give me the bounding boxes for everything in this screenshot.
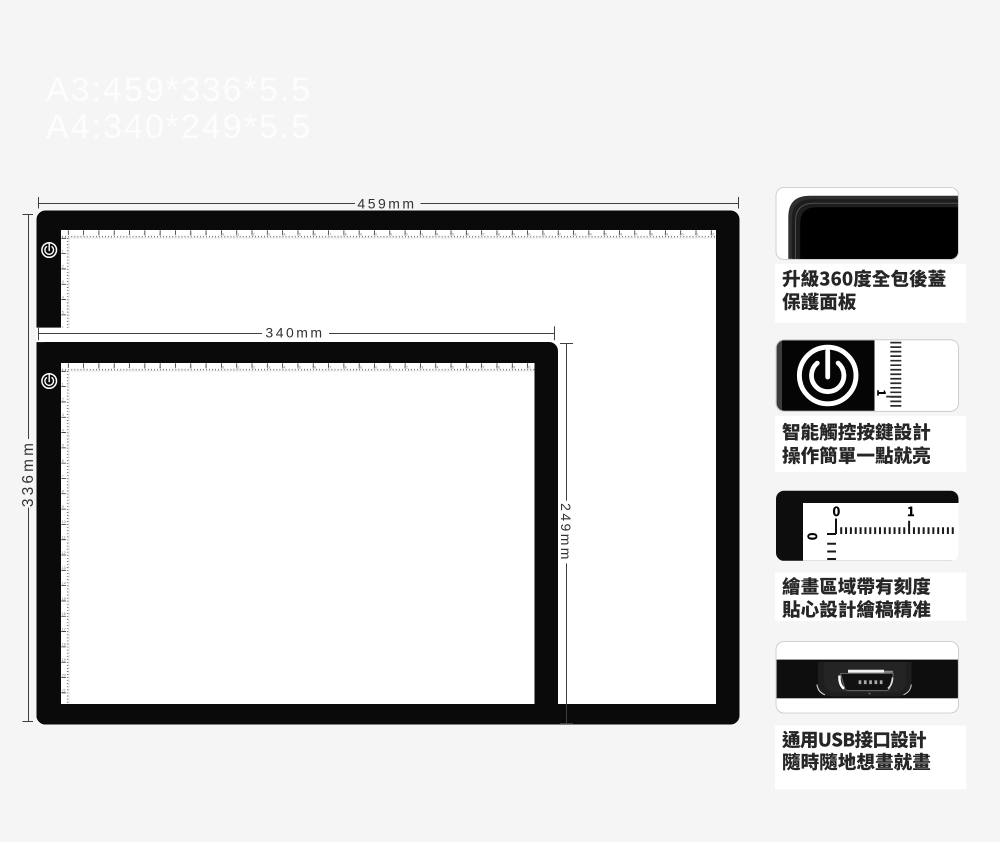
svg-text:2: 2 <box>62 398 64 402</box>
svg-text:3: 3 <box>62 280 64 284</box>
svg-text:10: 10 <box>62 520 66 524</box>
svg-text:37: 37 <box>634 233 638 237</box>
svg-text:459mm: 459mm <box>357 196 416 212</box>
svg-text:13: 13 <box>62 566 66 570</box>
svg-text:17: 17 <box>62 627 66 631</box>
svg-text:16: 16 <box>312 233 316 237</box>
svg-text:30: 30 <box>526 233 530 237</box>
svg-text:27: 27 <box>480 366 484 370</box>
svg-text:12: 12 <box>251 366 255 370</box>
svg-text:15: 15 <box>297 366 301 370</box>
svg-text:6: 6 <box>62 459 64 463</box>
svg-text:20: 20 <box>373 366 377 370</box>
svg-text:17: 17 <box>327 233 331 237</box>
svg-text:38: 38 <box>649 233 653 237</box>
svg-text:35: 35 <box>603 233 607 237</box>
svg-text:13: 13 <box>266 233 270 237</box>
svg-text:21: 21 <box>389 233 393 237</box>
svg-text:27: 27 <box>480 233 484 237</box>
svg-text:18: 18 <box>62 643 66 647</box>
svg-text:17: 17 <box>327 366 331 370</box>
svg-text:5: 5 <box>62 444 64 448</box>
svg-text:30: 30 <box>526 366 530 370</box>
svg-text:19: 19 <box>62 658 66 662</box>
svg-text:14: 14 <box>281 233 285 237</box>
svg-text:28: 28 <box>496 366 500 370</box>
svg-text:19: 19 <box>358 366 362 370</box>
svg-text:18: 18 <box>343 366 347 370</box>
svg-text:32: 32 <box>557 233 561 237</box>
svg-text:14: 14 <box>281 366 285 370</box>
svg-text:18: 18 <box>343 233 347 237</box>
svg-text:24: 24 <box>435 233 439 237</box>
svg-text:336mm: 336mm <box>20 440 37 507</box>
svg-text:9: 9 <box>62 505 64 509</box>
svg-text:5: 5 <box>62 311 64 315</box>
svg-text:42: 42 <box>710 233 714 237</box>
svg-text:14: 14 <box>62 581 66 585</box>
svg-text:23: 23 <box>419 366 423 370</box>
svg-text:11: 11 <box>62 536 66 540</box>
svg-text:12: 12 <box>251 233 255 237</box>
svg-text:28: 28 <box>496 233 500 237</box>
svg-text:39: 39 <box>664 233 668 237</box>
svg-text:1: 1 <box>62 382 64 386</box>
svg-text:16: 16 <box>312 366 316 370</box>
svg-text:249mm: 249mm <box>558 503 574 562</box>
svg-text:2: 2 <box>62 265 64 269</box>
svg-text:4: 4 <box>62 295 64 299</box>
svg-text:13: 13 <box>266 366 270 370</box>
svg-text:20: 20 <box>62 673 66 677</box>
svg-text:340mm: 340mm <box>265 325 324 341</box>
svg-text:22: 22 <box>404 233 408 237</box>
svg-text:25: 25 <box>450 366 454 370</box>
svg-text:15: 15 <box>62 597 66 601</box>
svg-text:25: 25 <box>450 233 454 237</box>
svg-text:15: 15 <box>297 233 301 237</box>
svg-text:8: 8 <box>62 490 64 494</box>
svg-text:31: 31 <box>542 233 546 237</box>
svg-text:41: 41 <box>695 233 699 237</box>
svg-text:21: 21 <box>389 366 393 370</box>
svg-text:22: 22 <box>404 366 408 370</box>
svg-text:36: 36 <box>618 233 622 237</box>
svg-text:29: 29 <box>511 366 515 370</box>
svg-text:12: 12 <box>62 551 66 555</box>
svg-text:4: 4 <box>62 428 64 432</box>
svg-text:29: 29 <box>511 233 515 237</box>
svg-text:24: 24 <box>435 366 439 370</box>
svg-text:40: 40 <box>680 233 684 237</box>
svg-text:26: 26 <box>465 233 469 237</box>
svg-text:10: 10 <box>220 233 224 237</box>
svg-text:19: 19 <box>358 233 362 237</box>
svg-text:20: 20 <box>373 233 377 237</box>
svg-text:10: 10 <box>220 366 224 370</box>
svg-text:16: 16 <box>62 612 66 616</box>
svg-text:21: 21 <box>62 689 66 693</box>
svg-text:7: 7 <box>62 474 64 478</box>
svg-text:26: 26 <box>465 366 469 370</box>
svg-text:3: 3 <box>62 413 64 417</box>
svg-text:23: 23 <box>419 233 423 237</box>
svg-text:34: 34 <box>588 233 592 237</box>
svg-text:1: 1 <box>62 249 64 253</box>
svg-text:33: 33 <box>572 233 576 237</box>
